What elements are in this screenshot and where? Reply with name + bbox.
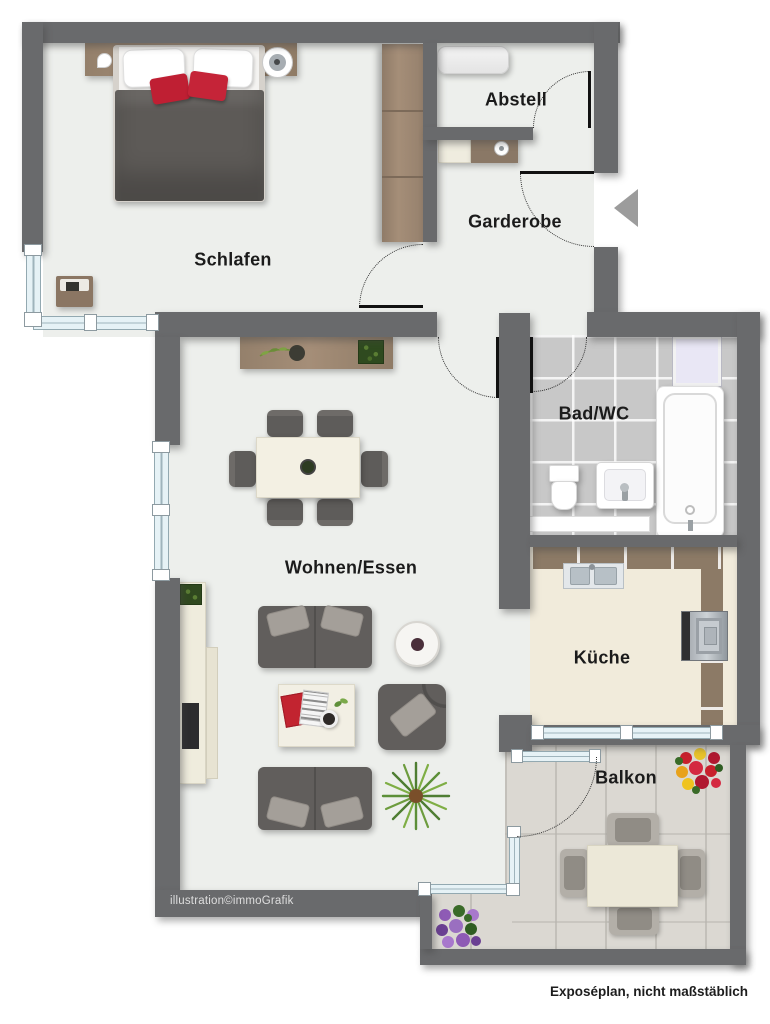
door-leaf-schlafen: [359, 305, 423, 308]
flower-box-icon: [435, 903, 483, 949]
room-label-bad: Bad/WC: [559, 404, 630, 425]
wall-balcony-east: [730, 745, 746, 965]
room-label-balkon: Balkon: [595, 768, 657, 789]
wall-bad-kueche-west: [499, 313, 530, 609]
door-leaf-wohnen: [496, 337, 499, 398]
planter-box: [358, 340, 384, 364]
room-label-abstell: Abstell: [485, 90, 547, 111]
nightstand-lamp: [97, 53, 112, 68]
door-leaf-entry: [520, 171, 594, 174]
wall-abstell-divider: [423, 127, 533, 140]
credit-illustration: illustration©immoGrafik: [170, 895, 294, 907]
planter-box: [180, 584, 202, 605]
wardrobe: [382, 44, 423, 242]
floor-kueche-doorway: [499, 609, 530, 715]
room-label-kueche: Küche: [574, 648, 631, 669]
bathroom-sink: [596, 462, 654, 509]
window-mullion: [620, 725, 633, 740]
wall-wohnen-west-lower: [155, 578, 180, 890]
alarm-clock: [262, 47, 293, 78]
dining-chair: [267, 410, 303, 437]
window-schlafen-west: [26, 246, 41, 320]
wall-right-lower: [594, 247, 618, 314]
kitchen-sink: [563, 563, 624, 589]
window-mullion: [418, 882, 431, 896]
room-label-schlafen: Schlafen: [194, 250, 271, 271]
wall-east: [737, 312, 760, 745]
window-mullion: [710, 725, 723, 740]
balcony-chair: [676, 849, 705, 897]
window-mullion: [531, 725, 544, 740]
wall-balcony-pier: [499, 715, 532, 752]
wall-balcony-west: [420, 893, 432, 949]
window-mullion: [24, 244, 42, 256]
houseplant-icon: [381, 761, 451, 831]
wall-bad-south: [530, 535, 737, 547]
duvet: [115, 90, 264, 201]
bathroom-radiator: [528, 516, 650, 532]
window-mullion: [506, 883, 520, 896]
floor-plan: Schlafen Abstell Garderobe Bad/WC Wohnen…: [0, 0, 770, 1024]
window-mullion: [146, 314, 159, 331]
door-leaf-abstell: [588, 71, 591, 128]
tv: [182, 703, 199, 749]
tv-board: [178, 582, 206, 784]
window-mullion: [84, 314, 97, 331]
side-table: [394, 621, 440, 667]
wall-bad-north: [587, 312, 760, 337]
olive-sprig-icon: [258, 342, 294, 362]
dining-chair: [229, 451, 256, 487]
wall-left: [22, 22, 43, 252]
dresser: [56, 276, 93, 307]
stove: [681, 611, 728, 661]
red-cushion: [187, 70, 228, 101]
dining-chair: [361, 451, 388, 487]
balcony-table: [587, 845, 678, 907]
dining-chair: [317, 410, 353, 437]
door-leaf-bad: [530, 337, 533, 393]
wall-wohnen-west-upper: [155, 337, 180, 445]
wall-balcony-south: [420, 949, 746, 965]
balcony-chair: [607, 813, 659, 847]
bathtub: [656, 386, 724, 538]
window-mullion: [152, 504, 170, 516]
kitchen-counter-north: [533, 547, 723, 569]
window-mullion: [152, 441, 170, 453]
dining-chair: [317, 499, 353, 526]
storage-cabinet: [437, 46, 509, 74]
decor-bowl: [494, 141, 509, 156]
kitchen-worktop-north: [533, 569, 723, 588]
wall-wohnen-north: [155, 312, 437, 337]
wall-right-upper: [594, 22, 618, 173]
leaf-decor-icon: [333, 696, 349, 710]
dining-chair: [267, 499, 303, 526]
wall-top: [22, 22, 620, 43]
room-label-wohnen: Wohnen/Essen: [285, 558, 417, 579]
bathroom-window: [673, 336, 721, 386]
window-mullion: [152, 569, 170, 581]
coffee-cup: [320, 710, 338, 728]
window-mullion: [24, 312, 42, 327]
balcony-chair: [560, 849, 589, 897]
decor-bowl: [300, 459, 316, 475]
flower-box-icon: [674, 746, 724, 792]
window-wohnen-corner-south: [420, 884, 515, 894]
wall-garderobe-west: [423, 43, 437, 242]
toilet: [549, 465, 579, 511]
balcony-chair: [609, 903, 659, 935]
room-label-garderobe: Garderobe: [468, 212, 562, 233]
credit-disclaimer: Exposéplan, nicht maßstäblich: [550, 984, 748, 999]
entrance-arrow-icon: [614, 189, 638, 227]
tv-board-shelf: [206, 647, 218, 779]
